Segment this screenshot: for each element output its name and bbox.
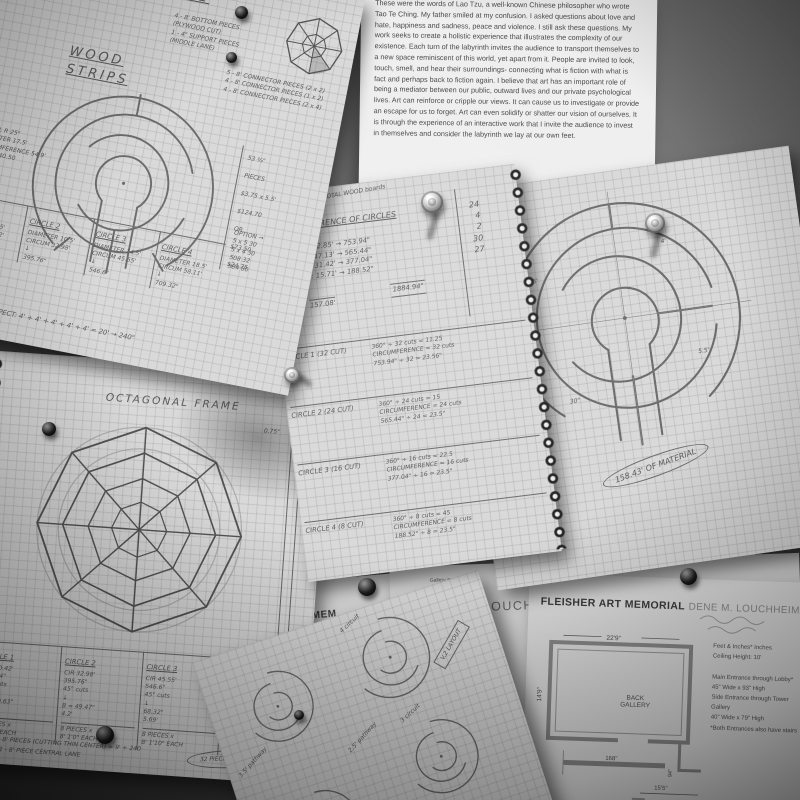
total-inches: 1884.94": [390, 280, 427, 298]
cut-section-body: 360° ÷ 8 cuts = 45 CIRCUMFERENCE = 8 cut…: [392, 497, 550, 541]
cut-section: CIRCLE 1 (32 CUT) 360° ÷ 32 cuts = 11.25…: [283, 320, 529, 380]
grommet-pin-icon: [421, 191, 443, 213]
grommet-pin-icon: [284, 367, 300, 383]
pushpin-icon: [680, 568, 697, 585]
cut-section-label: CIRCLE 4 (8 CUT): [305, 516, 395, 552]
pushpin-icon: [226, 52, 237, 63]
total-feet: 157.08': [309, 297, 336, 312]
cut-section-body: 360° ÷ 32 cuts = 11.25 CIRCUMFERENCE = 3…: [371, 325, 529, 369]
sketch-label: 2.5' pathway: [347, 720, 379, 755]
frame-title: FRAME: [150, 0, 212, 8]
cut-section: CIRCLE 4 (8 CUT) 360° ÷ 8 cuts = 45 CIRC…: [304, 492, 550, 552]
grommet-pin-icon: [645, 213, 665, 233]
table-column: CIRCLE 3 DIAMETER 14.5' CIRCUM 45.55' ↓ …: [83, 218, 160, 288]
column-title: CIRCLE 3: [146, 663, 177, 675]
pushpin-icon: [235, 6, 248, 19]
dim-back-depth: 14'9": [536, 686, 544, 701]
cut-section-body: 360° ÷ 16 cuts = 22.5 CIRCUMFERENCE = 16…: [385, 440, 543, 484]
octagonal-frame-title: OCTAGONAL FRAME: [105, 391, 241, 415]
dim-back-width: 22'9": [606, 635, 621, 643]
floorplan-title: FLEISHER ART MEMORIAL: [540, 595, 685, 612]
margin-tally-numbers: 24 4 2 30 27: [468, 198, 485, 255]
cut-section: CIRCLE 3 (16 CUT) 360° ÷ 16 cuts = 22.5 …: [297, 435, 543, 495]
cut-section-label: CIRCLE 2 (24 CUT): [291, 401, 381, 437]
table-column: CIRCLE 2 DIAMETER 10.5' CIRCUM 32.98' ↓ …: [17, 205, 94, 275]
pinboard-photo: These were the words of Lao Tzu, a well-…: [0, 0, 800, 800]
cut-section-body: 360° ÷ 24 cuts = 15 CIRCUMFERENCE = 24 c…: [378, 382, 536, 426]
column-body: CIR 20.42' 245.04" 45° cuts ↓ B = 30.63"…: [0, 663, 57, 718]
pushpin-icon: [294, 710, 304, 720]
spiral-sketch-drawing: [267, 768, 383, 800]
pushpin-icon: [96, 726, 114, 744]
top-margin-note: TOTAL WOOD boards: [322, 183, 386, 202]
pencil-scribble-marks: [698, 613, 799, 638]
octagon-web-drawing: [19, 410, 259, 650]
spiral-sketch-drawing: [381, 696, 502, 800]
ring-dim-label: 4': [660, 238, 667, 247]
ring-dim-label: 30": [570, 397, 581, 407]
table-column: CIRCLE 4 DIAMETER 18.5' CIRCUM 58.11' ↓ …: [149, 231, 226, 301]
room-back-gallery: BACK GALLERY: [620, 694, 650, 709]
cut-section-label: CIRCLE 3 (16 CUT): [298, 459, 388, 495]
dim-tower-width: 15'5": [654, 786, 667, 792]
dim-door: 94": [668, 769, 674, 777]
margin-divider-line: [454, 189, 471, 316]
pushpin-icon: [42, 422, 56, 436]
octagon-mini-drawing: [278, 10, 351, 83]
cut-section: CIRCLE 2 (24 CUT) 360° ÷ 24 cuts = 15 CI…: [290, 377, 536, 437]
spiral-sketch-drawing: [220, 648, 336, 764]
table-column: CIRCLE 1 CIR 20.42' 245.04" 45° cuts ↓ B…: [0, 640, 61, 743]
floorplan-legend: Feet & Inches* Inches Ceiling Height: 10…: [710, 642, 800, 737]
ring-dim-label: 5.5': [698, 347, 710, 357]
spiral-sketch-drawing: [327, 594, 453, 720]
strip-dim-top: 0.75": [263, 428, 280, 437]
dim-corridor: 168": [605, 756, 617, 762]
pushpin-icon: [358, 578, 376, 596]
column-title: CIRCLE 1: [0, 652, 14, 664]
handles-note: HANDLES EXPECT: 4' + 4' + 4' + 4' + 4' =…: [0, 300, 135, 344]
column-body: CIR 32.98' 395.76" 45° cuts ↓ B = 49.47"…: [61, 669, 138, 724]
gallery-floorplan-drawing: 22'9" 14'9" 168" 94" 15'5": [527, 619, 709, 800]
column-title: CIRCLE 2: [65, 657, 96, 669]
artist-statement-text: These were the words of Lao Tzu, a well-…: [373, 0, 641, 142]
fleisher-floorplan-sheet: FLEISHER ART MEMORIAL DENE M. LOUCHHEIM …: [521, 573, 800, 800]
column-pieces: 8 PIECES x 8' 1'10" EACH: [141, 728, 216, 753]
